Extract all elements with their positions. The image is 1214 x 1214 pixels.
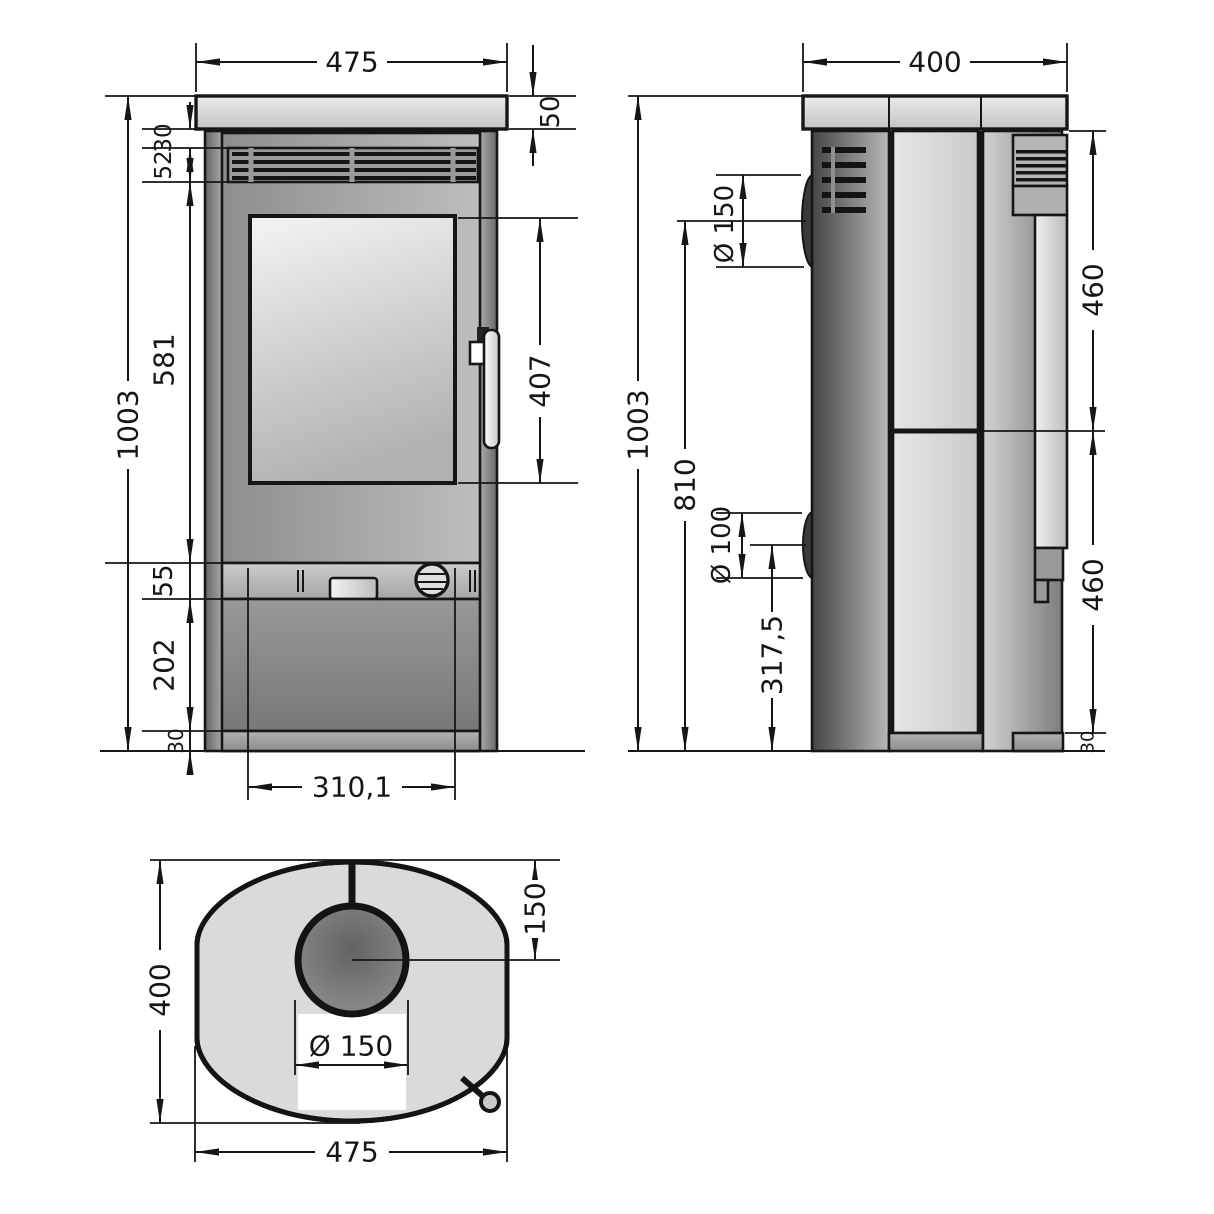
dim-front-glass-height: 407 (524, 354, 557, 407)
side-back-column (812, 131, 889, 751)
dim-side-outlet-height: 317,5 (756, 615, 789, 695)
side-step-2 (1035, 580, 1048, 602)
dim-side-flue-height: 810 (669, 458, 702, 511)
dim-front-base-height: 30 (164, 728, 188, 753)
stove-dimension-drawing: 475 50 30 52 581 55 202 30 1003 407 310,… (0, 0, 1214, 1214)
door-handle[interactable] (484, 330, 499, 448)
front-top-plate (196, 96, 507, 129)
dim-front-pedestal-height: 202 (148, 638, 181, 691)
dim-side-total-height: 1003 (622, 389, 655, 460)
dim-side-flue-diameter: Ø 150 (710, 185, 740, 263)
side-top-plate (803, 96, 1067, 129)
dim-front-vent-height: 52 (151, 150, 177, 179)
dim-side-cladding-lower: 460 (1077, 558, 1110, 611)
dim-front-door-section: 581 (148, 333, 181, 386)
dim-front-width: 475 (325, 46, 378, 79)
air-control-knob[interactable] (416, 564, 448, 596)
dim-side-depth: 400 (908, 46, 961, 79)
dim-front-gap-top: 30 (151, 123, 177, 152)
top-handle-knob[interactable] (481, 1093, 499, 1111)
dim-side-outlet-diameter: Ø 100 (707, 506, 737, 584)
dim-top-depth: 400 (144, 963, 177, 1016)
front-base (222, 731, 480, 751)
side-base-strip (889, 733, 983, 751)
dim-front-plate-height: 50 (536, 95, 566, 128)
side-glass-profile (1035, 215, 1067, 548)
ash-drawer-pull[interactable] (330, 578, 377, 599)
dim-top-flue-offset: 150 (519, 882, 552, 935)
dim-front-bottom-width: 310,1 (312, 771, 392, 804)
front-view: 475 50 30 52 581 55 202 30 1003 407 310,… (100, 43, 585, 804)
dim-top-flue-diameter: Ø 150 (309, 1030, 393, 1063)
top-view: 400 150 Ø 150 475 (144, 860, 561, 1169)
dim-front-band-height: 55 (149, 564, 179, 597)
front-pedestal (222, 599, 480, 731)
dim-side-base-height: 30 (1078, 731, 1099, 754)
dim-front-total-height: 1003 (112, 389, 145, 460)
dim-top-width: 475 (325, 1136, 378, 1169)
side-front-foot (1013, 733, 1063, 751)
dim-side-cladding-upper: 460 (1077, 263, 1110, 316)
front-door-glass (250, 216, 455, 483)
side-view: 400 1003 810 Ø 150 Ø 100 317,5 460 460 3… (622, 43, 1110, 753)
side-front-frame-top (1013, 186, 1067, 215)
side-step-1 (1035, 548, 1063, 580)
